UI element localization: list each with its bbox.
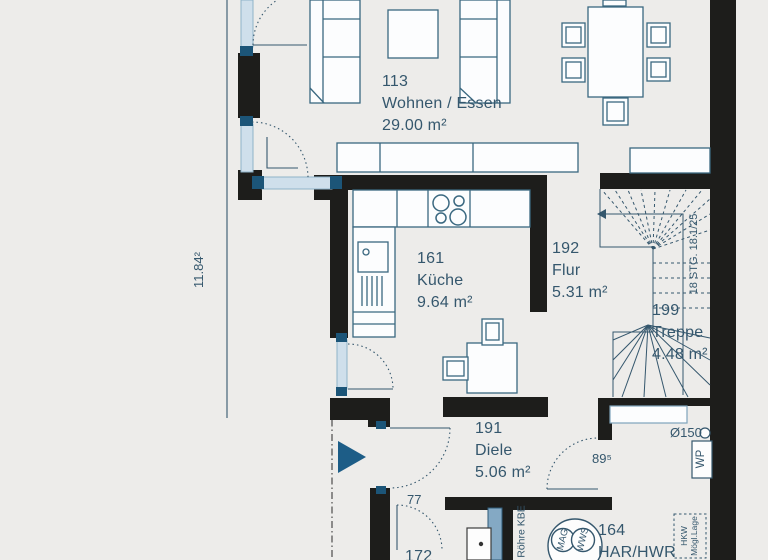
pipe-label: Röhre KBE [516, 502, 529, 560]
room-area: 4.48 m² [652, 344, 708, 366]
room-name: HAR/HWR [598, 542, 676, 560]
door-width-77: 77 [407, 492, 421, 507]
floor-plan: 113 Wohnen / Essen 29.00 m² 161 Küche 9.… [0, 0, 768, 560]
room-name: Wohnen / Essen [382, 93, 502, 115]
stair-note-label: 18 STG. 18.1/25 [688, 206, 702, 302]
coffee-table [388, 10, 438, 58]
room-area: 5.06 m² [475, 462, 531, 484]
room-number: 191 [475, 418, 531, 440]
room-number: 192 [552, 238, 608, 260]
room-name: Küche [417, 270, 473, 292]
heat-pump-label: WP [695, 444, 709, 474]
room-name: Treppe [652, 322, 708, 344]
room-area: 29.00 m² [382, 115, 502, 137]
room-area: 9.64 m² [417, 292, 473, 314]
room-label-diele: 191 Diele 5.06 m² [475, 418, 531, 484]
sink-unit [353, 227, 395, 337]
hkw-label: HKW Mögl.Lage [679, 513, 701, 559]
room-label-flur: 192 Flur 5.31 m² [552, 238, 608, 304]
duct-label: Ø150 [670, 425, 702, 440]
stair-niche [610, 406, 687, 423]
room-name: Diele [475, 440, 531, 462]
room-label-treppe: 199 Treppe 4.48 m² [652, 300, 708, 366]
door-width-89: 89⁵ [592, 451, 612, 466]
room-number: 161 [417, 248, 473, 270]
sideboard-right [630, 148, 710, 173]
dimension-label-left: 11.84² [191, 242, 209, 298]
room-number: 113 [382, 71, 502, 93]
room-number: 172 [405, 546, 432, 560]
room-number: 164 [598, 520, 676, 542]
room-label-har-hwr: 164 HAR/HWR [598, 520, 676, 560]
utility-cabinet [467, 528, 491, 560]
room-name: Flur [552, 260, 608, 282]
room-number: 199 [652, 300, 708, 322]
room-label-172: 172 [405, 546, 432, 560]
room-label-wohnen-essen: 113 Wohnen / Essen 29.00 m² [382, 71, 502, 137]
room-area: 5.31 m² [552, 282, 608, 304]
sideboard-kitchen-wall [337, 143, 578, 172]
sofa-left [310, 0, 360, 103]
room-label-kueche: 161 Küche 9.64 m² [417, 248, 473, 314]
